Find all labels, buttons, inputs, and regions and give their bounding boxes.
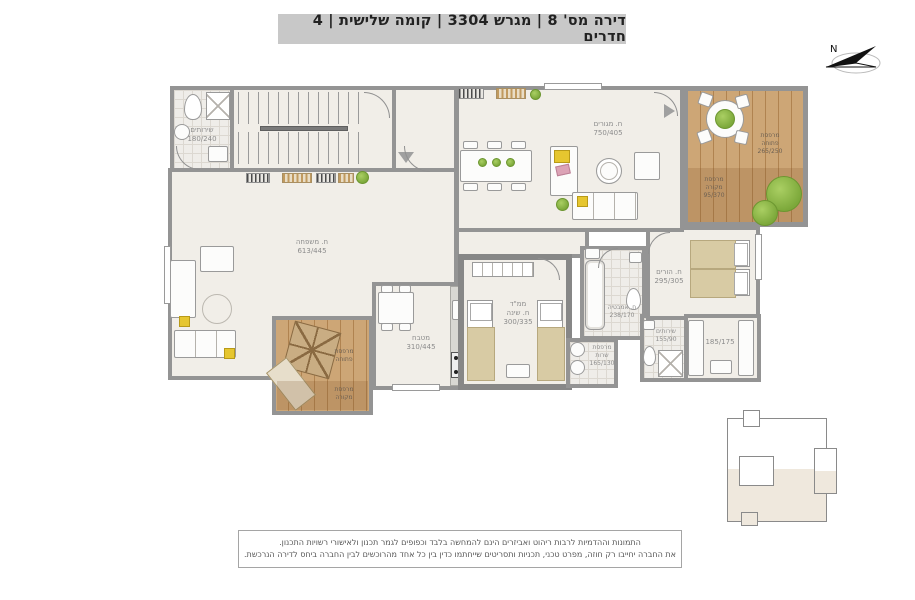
chair: [734, 130, 749, 145]
label-balcony-bl-cov: מרפסתמקורה: [322, 386, 366, 402]
disclaimer-box: התמונות וההדמיות לרבות ריהוט ואביזרים הי…: [238, 530, 682, 568]
label-balcony-tr-cov: מרפסתמקורה95/370: [696, 176, 732, 199]
label-mamad: ממ"דח. שינה300/335: [490, 300, 546, 327]
wardrobe-unit: [688, 320, 704, 376]
plant-icon: [356, 171, 369, 184]
coffee-table: [596, 158, 622, 184]
cushion: [224, 348, 235, 359]
shower-icon: [658, 350, 683, 377]
plant-icon: [478, 158, 487, 167]
rug: [202, 294, 232, 324]
disclaimer-line-2: את החברה יחייבו רק חוזה, מפרט טכני, תכני…: [244, 549, 676, 561]
label-bath: ח. אמבטיה238/170: [602, 304, 642, 320]
cabinet: [496, 88, 526, 99]
label-kitchen: מטבח310/445: [398, 334, 444, 352]
washer-icon: [570, 342, 585, 357]
toilet-icon: [643, 346, 656, 366]
sideboard: [316, 173, 336, 183]
label-family: ח. משפחה613/445: [282, 238, 342, 256]
label-closet: 185/175: [702, 338, 738, 347]
svg-text:N: N: [830, 44, 837, 55]
chair: [487, 183, 502, 191]
chair: [463, 141, 478, 149]
armchair: [200, 246, 234, 272]
floorplan-page: דירה מס' 8 | מגרש 3304 | קומה שלישית | 4…: [0, 0, 915, 600]
kitchen-table: [378, 292, 414, 324]
window: [755, 234, 762, 280]
cabinet: [710, 360, 732, 374]
chair: [399, 285, 411, 293]
chair: [511, 183, 526, 191]
bed-single: [690, 240, 750, 267]
window: [164, 246, 171, 304]
key-plan-block: [739, 456, 774, 486]
plant-icon: [715, 109, 735, 129]
key-plan-block: [814, 448, 837, 494]
chair: [399, 323, 411, 331]
plant-icon: [506, 158, 515, 167]
window: [544, 83, 602, 90]
toilet-icon: [184, 94, 202, 120]
armchair: [634, 152, 660, 180]
chair: [487, 141, 502, 149]
label-wc-top: שירותים180/240: [176, 126, 228, 144]
cushion: [179, 316, 190, 327]
sink-icon: [629, 252, 642, 263]
sideboard: [282, 173, 312, 183]
sink-icon: [208, 146, 228, 162]
nightstand: [506, 364, 530, 378]
chair: [381, 285, 393, 293]
wardrobe: [472, 262, 534, 277]
chair: [463, 183, 478, 191]
bush-icon: [752, 200, 778, 226]
key-plan-block: [741, 512, 758, 526]
window: [392, 384, 440, 391]
label-parents: ח. הורים295/305: [650, 268, 688, 286]
page-title: דירה מס' 8 | מגרש 3304 | קומה שלישית | 4…: [278, 14, 626, 44]
wardrobe-unit: [738, 320, 754, 376]
sideboard: [338, 173, 354, 183]
sideboard: [246, 173, 270, 183]
cushion: [554, 150, 570, 163]
label-wc-small: שירותים155/90: [648, 328, 684, 344]
stair-treads: [238, 92, 362, 124]
bed-single: [690, 269, 750, 296]
sink-icon: [585, 248, 600, 259]
chair: [381, 323, 393, 331]
plant-icon: [530, 89, 541, 100]
stair-treads: [238, 132, 362, 164]
washer-icon: [570, 360, 585, 375]
label-service: מרפסתשרות165/130: [588, 344, 616, 367]
plant-icon: [492, 158, 501, 167]
chair: [511, 141, 526, 149]
compass-icon: N: [820, 34, 886, 86]
stair-railing: [260, 126, 348, 131]
label-balcony-bl-open: מרפסתפתוחה: [322, 348, 366, 364]
key-plan-block: [743, 410, 760, 427]
cushion: [577, 196, 588, 207]
cabinet: [458, 88, 484, 99]
sofa: [170, 260, 196, 318]
shower-icon: [206, 92, 230, 120]
label-balcony-tr-open: מרפסתפתוחה265/250: [748, 132, 792, 155]
plant-icon: [556, 198, 569, 211]
disclaimer-line-1: התמונות וההדמיות לרבות ריהוט ואביזרים הי…: [279, 537, 641, 549]
label-living: ח. מגורים750/405: [580, 120, 636, 138]
